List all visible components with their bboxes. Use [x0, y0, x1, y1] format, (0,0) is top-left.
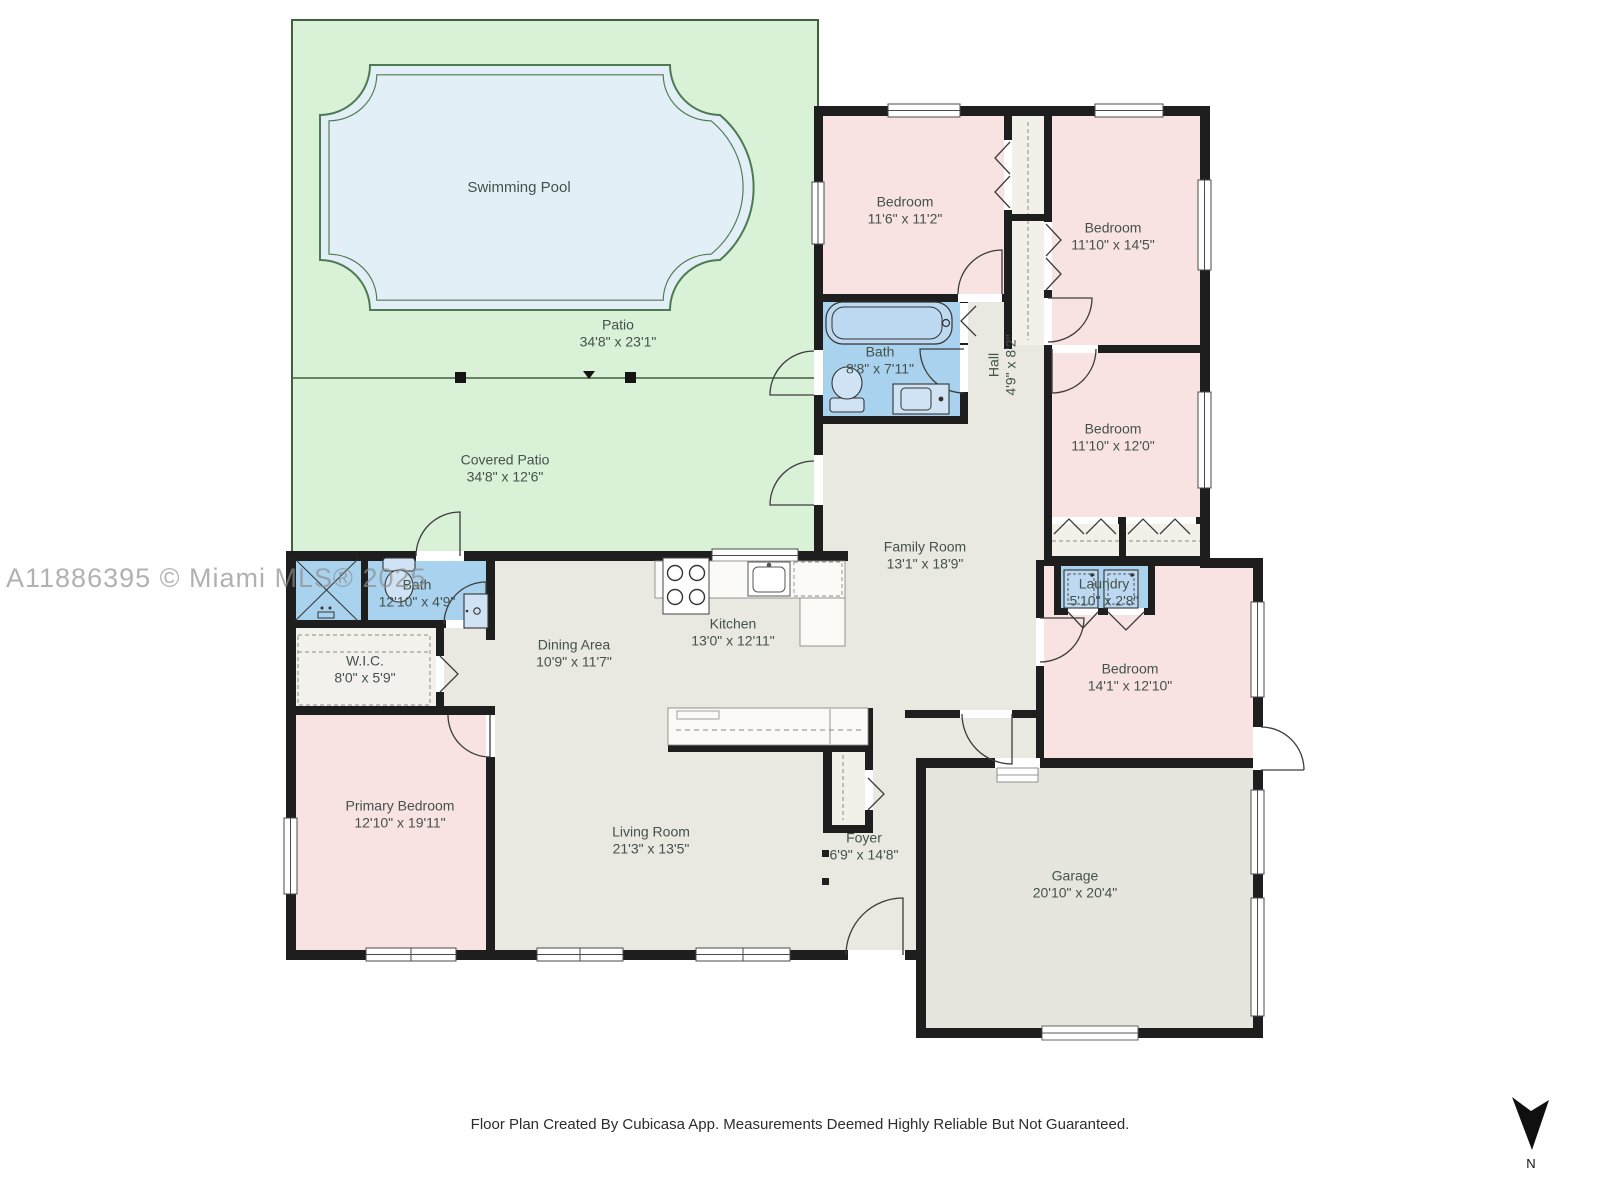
- room-label-garage: Garage 20'10" x 20'4": [1033, 867, 1118, 900]
- room-name: Kitchen: [691, 615, 775, 632]
- window: [1251, 602, 1264, 697]
- room-name: Hall: [985, 334, 1002, 395]
- window: [812, 182, 824, 244]
- room-label-bedroom-1: Bedroom 11'6" x 11'2": [868, 193, 943, 226]
- room-dims: 14'1" x 12'10": [1088, 677, 1173, 694]
- room-dims: 6'9" x 14'8": [830, 846, 899, 863]
- bathtub: [826, 302, 952, 344]
- room-name: Bath: [846, 343, 914, 360]
- room-dims: 10'9" x 11'7": [536, 653, 612, 670]
- room-dims: 34'8" x 12'6": [461, 468, 550, 485]
- room-dims: 21'3" x 13'5": [612, 840, 690, 857]
- window: [284, 818, 297, 894]
- room-label-swimming-pool: Swimming Pool: [467, 179, 570, 197]
- room-name: Laundry: [1070, 575, 1139, 592]
- window: [1251, 790, 1264, 874]
- room-dims: 13'1" x 18'9": [884, 555, 966, 572]
- window: [1095, 104, 1163, 117]
- room-dims: 13'0" x 12'11": [691, 632, 775, 649]
- room-label-covered-patio: Covered Patio 34'8" x 12'6": [461, 451, 550, 484]
- room-name: Swimming Pool: [467, 179, 570, 197]
- room-dims: 8'8" x 7'11": [846, 360, 914, 377]
- room-label-family-room: Family Room 13'1" x 18'9": [884, 538, 966, 571]
- room-dims: 11'6" x 11'2": [868, 210, 943, 227]
- room-name: Bedroom: [1088, 660, 1173, 677]
- window: [366, 948, 456, 961]
- room-dims: 12'10" x 4'9": [379, 593, 456, 610]
- room-label-primary-bedroom: Primary Bedroom 12'10" x 19'11": [346, 797, 455, 830]
- primary-bedroom-floor: [291, 712, 489, 954]
- room-label-bedroom-3: Bedroom 11'10" x 12'0": [1071, 420, 1155, 453]
- room-name: Living Room: [612, 823, 690, 840]
- room-label-kitchen: Kitchen 13'0" x 12'11": [691, 615, 775, 648]
- window: [537, 948, 623, 961]
- room-label-bedroom-4: Bedroom 14'1" x 12'10": [1088, 660, 1173, 693]
- room-dims: 20'10" x 20'4": [1033, 884, 1118, 901]
- bathroom-sink: [464, 594, 488, 628]
- window: [696, 948, 790, 961]
- window: [712, 549, 798, 562]
- room-name: Covered Patio: [461, 451, 550, 468]
- room-label-bedroom-2: Bedroom 11'10" x 14'5": [1071, 219, 1155, 252]
- room-name: Family Room: [884, 538, 966, 555]
- room-label-foyer: Foyer 6'9" x 14'8": [830, 829, 899, 862]
- window: [1251, 898, 1264, 1016]
- window: [1198, 180, 1211, 270]
- room-label-dining-area: Dining Area 10'9" x 11'7": [536, 636, 612, 669]
- kitchen-peninsula: [668, 708, 868, 745]
- patio-post: [455, 372, 466, 383]
- room-label-laundry: Laundry 5'10" x 2'8": [1070, 575, 1139, 608]
- patio-post: [625, 372, 636, 383]
- bathroom-sink: [893, 384, 949, 414]
- stove: [663, 558, 709, 614]
- room-dims: 34'8" x 23'1": [580, 333, 657, 350]
- room-name: Garage: [1033, 867, 1118, 884]
- room-name: W.I.C.: [334, 652, 395, 669]
- mls-watermark: A11886395 © Miami MLS® 2025: [6, 563, 427, 594]
- room-label-bath-main: Bath 8'8" x 7'11": [846, 343, 914, 376]
- window: [1198, 392, 1211, 488]
- room-dims: 11'10" x 14'5": [1071, 236, 1155, 253]
- room-dims: 12'10" x 19'11": [346, 814, 455, 831]
- room-name: Patio: [580, 316, 657, 333]
- room-name: Bedroom: [868, 193, 943, 210]
- footer-disclaimer: Floor Plan Created By Cubicasa App. Meas…: [0, 1116, 1600, 1133]
- room-dims: 4'9" x 8'2": [1002, 334, 1019, 395]
- room-dims: 11'10" x 12'0": [1071, 437, 1155, 454]
- room-label-hall: Hall 4'9" x 8'2": [985, 334, 1018, 395]
- window: [888, 104, 960, 117]
- room-label-living-room: Living Room 21'3" x 13'5": [612, 823, 690, 856]
- room-name: Primary Bedroom: [346, 797, 455, 814]
- floor-plan-canvas: Swimming Pool Patio 34'8" x 23'1" Covere…: [0, 0, 1600, 1185]
- room-dims: 5'10" x 2'8": [1070, 592, 1139, 609]
- kitchen-sink: [748, 562, 790, 596]
- room-label-wic: W.I.C. 8'0" x 5'9": [334, 652, 395, 685]
- room-name: Foyer: [830, 829, 899, 846]
- room-name: Dining Area: [536, 636, 612, 653]
- exterior-door-arc: [1261, 727, 1304, 770]
- room-label-patio: Patio 34'8" x 23'1": [580, 316, 657, 349]
- compass-north-label: N: [1526, 1156, 1535, 1171]
- room-dims: 8'0" x 5'9": [334, 669, 395, 686]
- room-name: Bedroom: [1071, 420, 1155, 437]
- room-name: Bedroom: [1071, 219, 1155, 236]
